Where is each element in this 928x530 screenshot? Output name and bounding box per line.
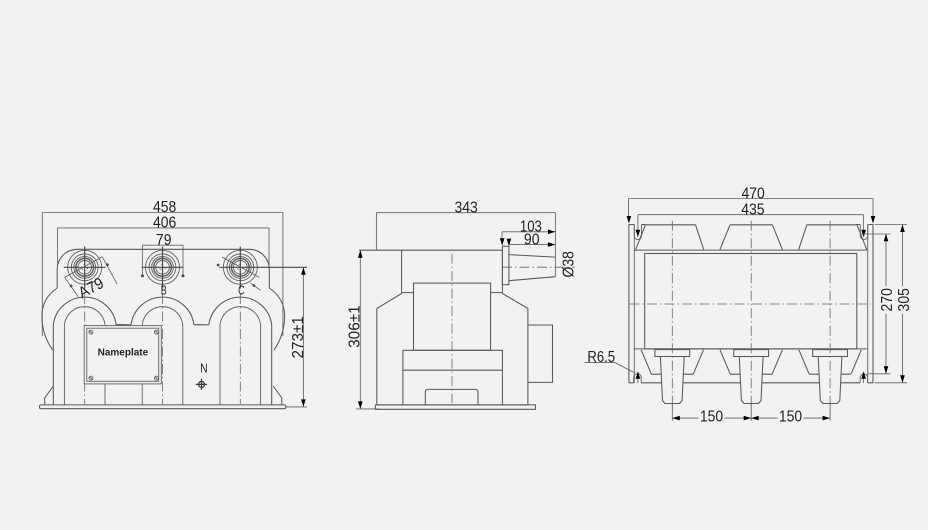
svg-text:306±1: 306±1 xyxy=(347,305,364,348)
svg-text:150: 150 xyxy=(700,408,723,425)
svg-text:273±1: 273±1 xyxy=(290,316,307,358)
svg-text:N: N xyxy=(200,361,208,375)
svg-text:435: 435 xyxy=(741,202,764,219)
svg-text:B: B xyxy=(161,284,167,298)
svg-text:90: 90 xyxy=(524,231,540,248)
svg-text:305: 305 xyxy=(896,288,913,311)
svg-text:Nameplate: Nameplate xyxy=(98,347,149,359)
svg-text:406: 406 xyxy=(153,215,176,232)
svg-text:C: C xyxy=(238,284,245,298)
svg-text:A79: A79 xyxy=(76,275,107,302)
svg-text:343: 343 xyxy=(454,199,477,216)
svg-text:470: 470 xyxy=(741,185,764,202)
svg-text:150: 150 xyxy=(779,408,802,425)
svg-text:Ø38: Ø38 xyxy=(561,251,578,278)
svg-text:R6.5: R6.5 xyxy=(587,349,615,366)
svg-text:270: 270 xyxy=(879,288,896,311)
svg-text:79: 79 xyxy=(156,232,172,249)
